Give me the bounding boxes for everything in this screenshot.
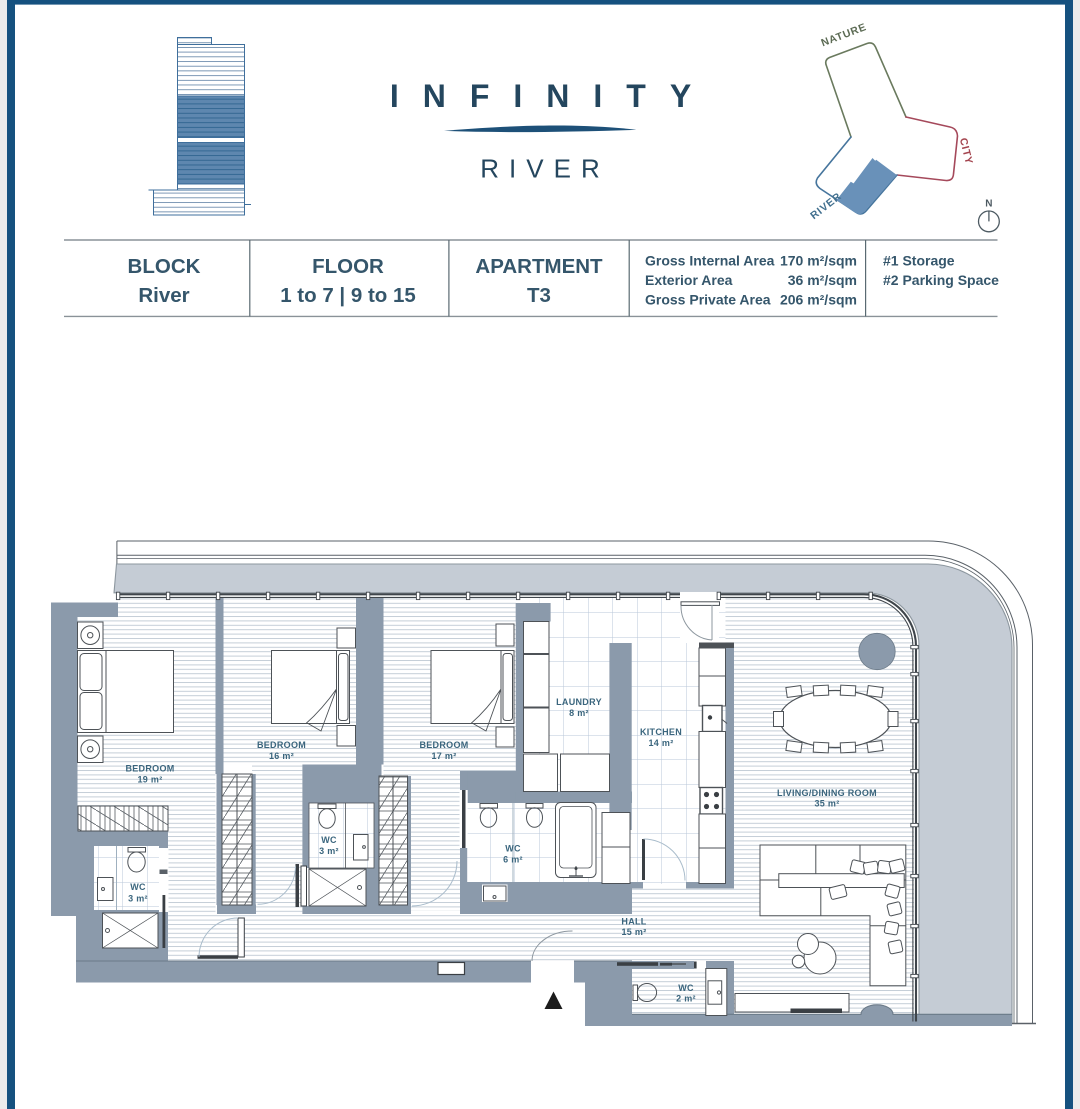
svg-text:WC: WC [505, 844, 521, 854]
svg-text:3 m²: 3 m² [319, 846, 339, 856]
svg-text:HALL: HALL [621, 917, 646, 927]
svg-text:BEDROOM: BEDROOM [257, 740, 306, 750]
svg-text:LAUNDRY: LAUNDRY [556, 697, 602, 707]
svg-text:36 m²/sqm: 36 m²/sqm [788, 272, 857, 288]
svg-text:Gross Private Area: Gross Private Area [645, 292, 771, 308]
svg-text:Exterior Area: Exterior Area [645, 272, 733, 288]
svg-text:206 m²/sqm: 206 m²/sqm [780, 292, 857, 308]
svg-text:17 m²: 17 m² [431, 751, 456, 761]
svg-text:Gross Internal Area: Gross Internal Area [645, 253, 775, 269]
svg-text:RIVER: RIVER [480, 154, 609, 184]
svg-text:INFINITY: INFINITY [390, 78, 715, 114]
svg-text:19 m²: 19 m² [137, 775, 162, 785]
svg-text:15 m²: 15 m² [621, 927, 646, 937]
svg-text:16 m²: 16 m² [269, 751, 294, 761]
svg-text:River: River [138, 284, 189, 307]
svg-text:3 m²: 3 m² [128, 894, 148, 904]
svg-text:WC: WC [130, 882, 146, 892]
svg-text:FLOOR: FLOOR [312, 255, 384, 278]
svg-text:35 m²: 35 m² [814, 799, 839, 809]
svg-text:WC: WC [678, 983, 694, 993]
svg-text:T3: T3 [527, 284, 551, 307]
svg-text:APARTMENT: APARTMENT [475, 255, 603, 278]
svg-text:BEDROOM: BEDROOM [419, 740, 468, 750]
svg-text:BLOCK: BLOCK [128, 255, 201, 278]
svg-text:LIVING/DINING ROOM: LIVING/DINING ROOM [777, 788, 877, 798]
svg-text:WC: WC [321, 835, 337, 845]
svg-text:BEDROOM: BEDROOM [125, 764, 174, 774]
svg-text:#1 Storage: #1 Storage [883, 253, 955, 269]
svg-text:2 m²: 2 m² [676, 994, 696, 1004]
svg-text:6 m²: 6 m² [503, 855, 523, 865]
svg-text:1 to 7 | 9 to 15: 1 to 7 | 9 to 15 [280, 284, 416, 307]
svg-text:KITCHEN: KITCHEN [640, 727, 682, 737]
svg-text:14 m²: 14 m² [648, 738, 673, 748]
svg-text:8 m²: 8 m² [569, 708, 589, 718]
svg-text:N: N [985, 199, 992, 210]
svg-text:#2 Parking Space: #2 Parking Space [883, 272, 999, 288]
svg-text:170 m²/sqm: 170 m²/sqm [780, 253, 857, 269]
